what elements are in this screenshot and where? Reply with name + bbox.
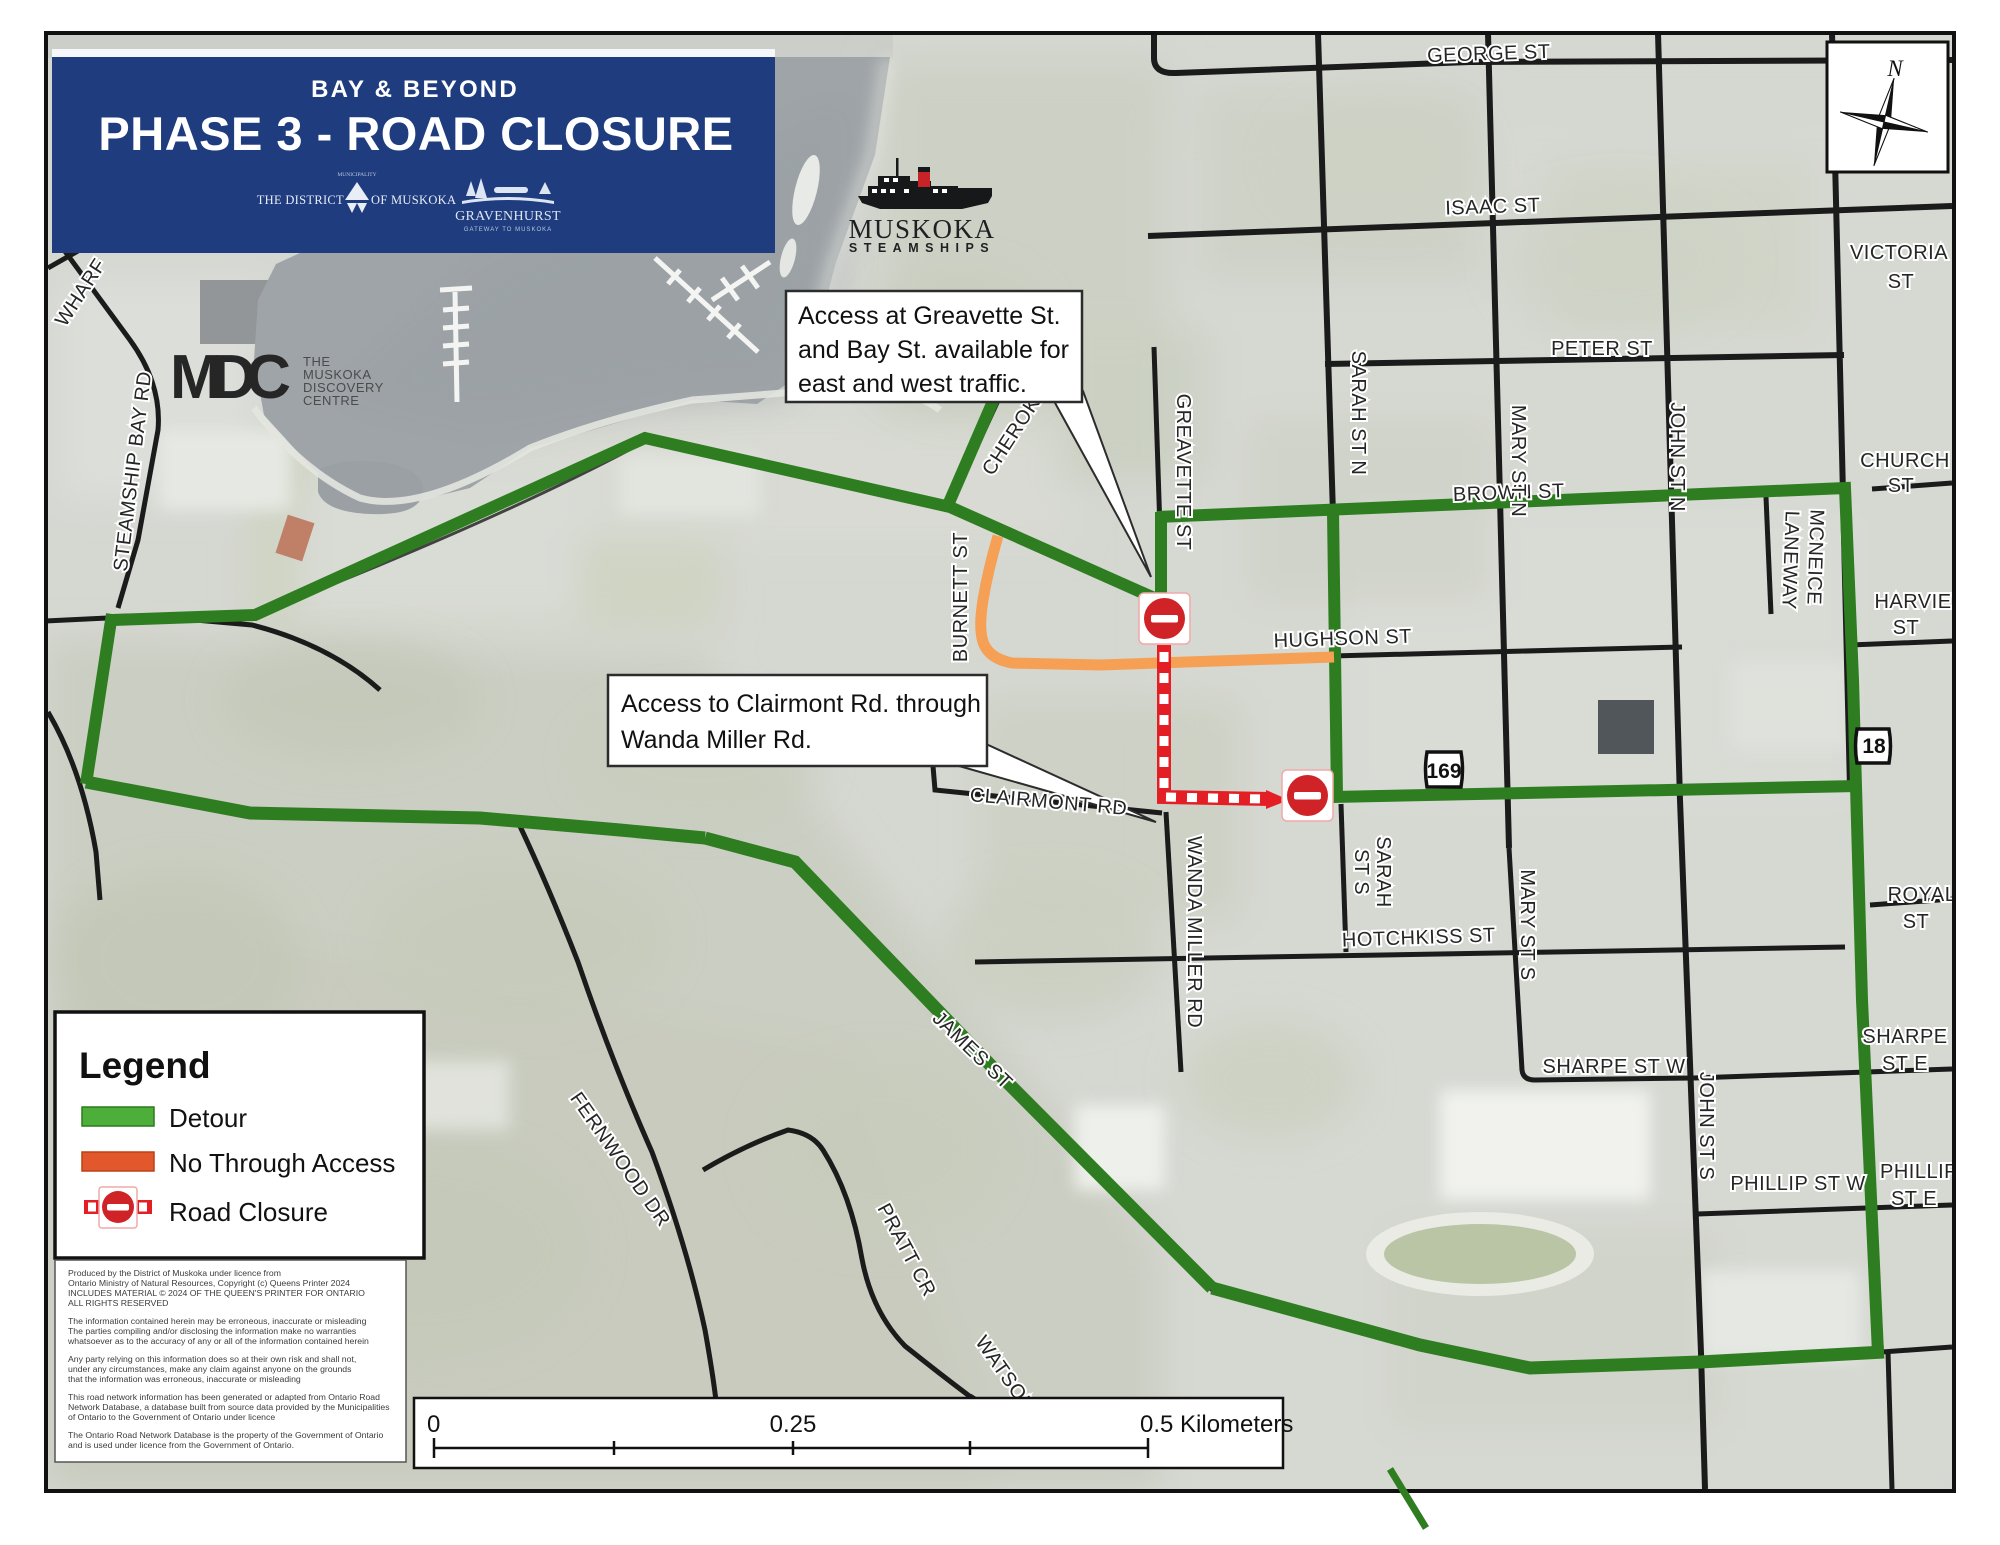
svg-text:PHILLIP ST W: PHILLIP ST W: [1730, 1173, 1865, 1195]
svg-text:Road Closure: Road Closure: [169, 1197, 328, 1227]
svg-text:JOHN ST S: JOHN ST S: [1695, 1072, 1717, 1181]
svg-text:Detour: Detour: [169, 1103, 247, 1133]
svg-text:ISAAC ST: ISAAC ST: [1445, 194, 1541, 219]
svg-text:OF MUSKOKA: OF MUSKOKA: [371, 193, 456, 207]
svg-text:MARY ST N: MARY ST N: [1507, 405, 1529, 517]
svg-text:ST: ST: [1888, 271, 1915, 293]
svg-text:CHURCH: CHURCH: [1860, 450, 1950, 472]
svg-text:GEORGE ST: GEORGE ST: [1427, 41, 1551, 67]
svg-text:Legend: Legend: [79, 1045, 211, 1086]
svg-text:BURNETT ST: BURNETT ST: [950, 532, 972, 662]
svg-text:ST E: ST E: [1891, 1188, 1937, 1210]
svg-text:and Bay St. available for: and Bay St. available for: [798, 336, 1069, 364]
svg-text:PETER ST: PETER ST: [1551, 338, 1653, 360]
svg-text:ST E: ST E: [1882, 1053, 1928, 1075]
svg-text:LANEWAY: LANEWAY: [1777, 510, 1802, 610]
svg-text:JOHN ST N: JOHN ST N: [1666, 402, 1688, 512]
svg-text:PHASE 3 - ROAD CLOSURE: PHASE 3 - ROAD CLOSURE: [98, 107, 733, 160]
svg-text:GATEWAY TO MUSKOKA: GATEWAY TO MUSKOKA: [464, 227, 552, 233]
svg-text:CENTRE: CENTRE: [303, 393, 359, 408]
svg-text:STEAMSHIPS: STEAMSHIPS: [849, 241, 995, 255]
svg-text:Access to Clairmont Rd. throug: Access to Clairmont Rd. through: [621, 690, 981, 718]
svg-text:Access at Greavette St.: Access at Greavette St.: [798, 302, 1061, 330]
svg-text:MCNEICE: MCNEICE: [1802, 509, 1827, 605]
svg-text:ST S: ST S: [1350, 849, 1372, 895]
svg-text:ROYAL: ROYAL: [1888, 884, 1957, 906]
svg-text:No Through Access: No Through Access: [169, 1148, 395, 1178]
svg-text:0.25: 0.25: [770, 1411, 817, 1438]
svg-text:east and west traffic.: east and west traffic.: [798, 370, 1027, 398]
svg-text:ST: ST: [1893, 617, 1920, 639]
svg-text:MDC: MDC: [170, 343, 290, 412]
svg-text:VICTORIA: VICTORIA: [1850, 242, 1948, 264]
svg-text:THE DISTRICT: THE DISTRICT: [257, 193, 344, 207]
svg-text:MUNICIPALITY: MUNICIPALITY: [337, 172, 376, 178]
svg-text:169: 169: [1426, 760, 1461, 783]
svg-text:Wanda Miller Rd.: Wanda Miller Rd.: [621, 726, 812, 754]
svg-text:SHARPE ST W: SHARPE ST W: [1543, 1056, 1686, 1078]
svg-text:PHILLIP: PHILLIP: [1880, 1161, 1958, 1183]
svg-text:HARVIE: HARVIE: [1874, 591, 1951, 613]
svg-text:BAY & BEYOND: BAY & BEYOND: [311, 76, 519, 103]
svg-text:GREAVETTE ST: GREAVETTE ST: [1172, 394, 1194, 551]
svg-text:SHARPE: SHARPE: [1862, 1026, 1947, 1048]
svg-text:0: 0: [427, 1411, 440, 1438]
svg-text:MUSKOKA: MUSKOKA: [848, 214, 995, 244]
svg-text:0.5 Kilometers: 0.5 Kilometers: [1140, 1411, 1293, 1438]
svg-text:ST: ST: [1903, 911, 1930, 933]
svg-text:MARY ST S: MARY ST S: [1516, 869, 1538, 980]
svg-text:18: 18: [1862, 735, 1886, 758]
svg-text:SARAH: SARAH: [1372, 836, 1394, 907]
svg-text:WANDA MILLER RD: WANDA MILLER RD: [1183, 836, 1205, 1028]
svg-text:GRAVENHURST: GRAVENHURST: [455, 209, 561, 224]
svg-text:SARAH ST N: SARAH ST N: [1347, 351, 1369, 476]
svg-text:N: N: [1886, 56, 1904, 81]
svg-text:ST: ST: [1888, 475, 1915, 497]
